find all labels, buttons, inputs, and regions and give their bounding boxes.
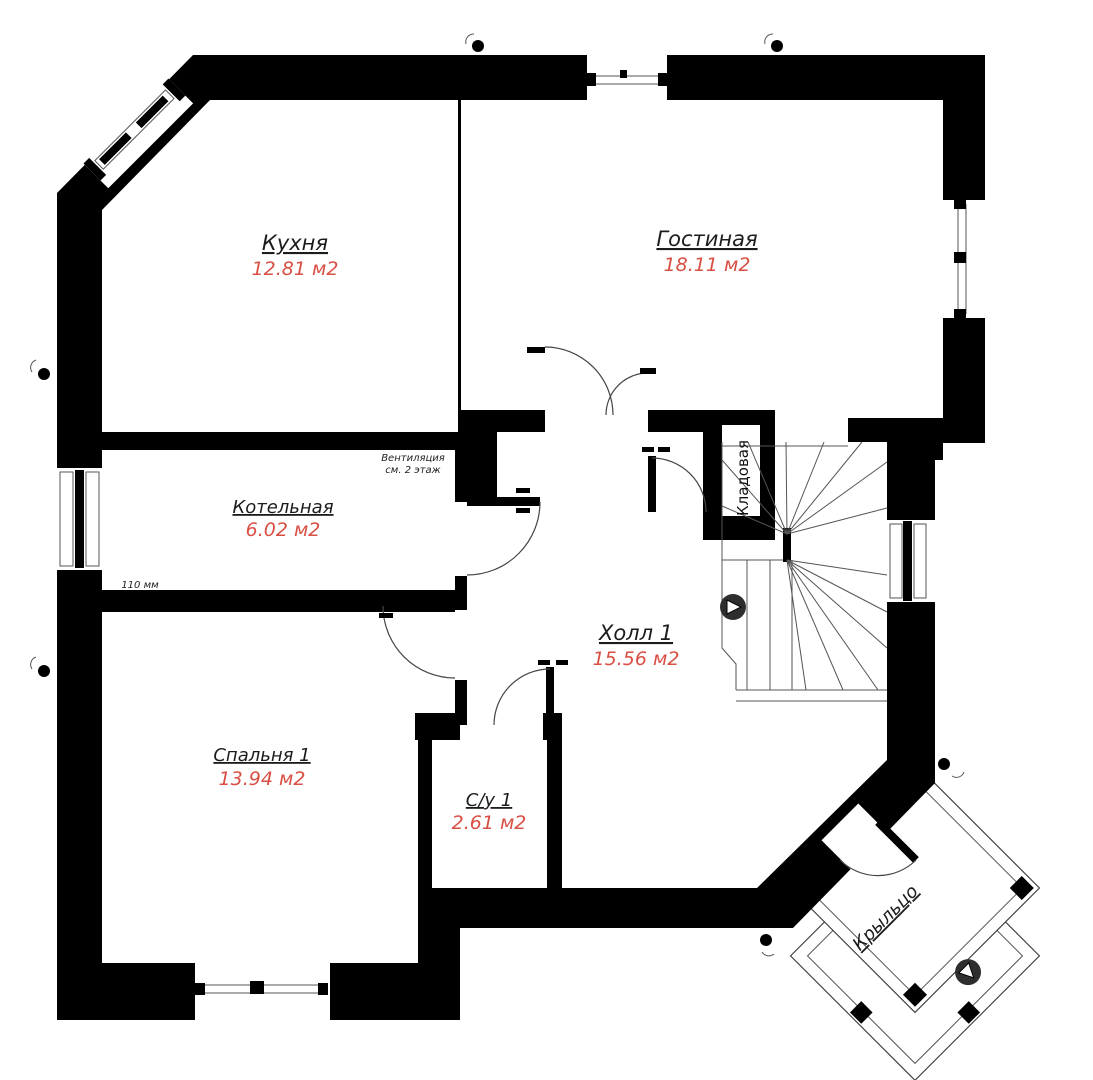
bathroom-door-opening [460, 725, 543, 740]
room-area-hall: 15.56 м2 [593, 648, 680, 670]
room-label-kitchen: Кухня [262, 231, 328, 255]
room-label-bedroom: Спальня 1 [213, 745, 310, 766]
ventilation-note-line2: см. 2 этаж [385, 465, 440, 476]
room-label-hall: Холл 1 [598, 621, 673, 645]
room-label-bathroom: С/у 1 [466, 790, 512, 811]
vent-mark-icon [765, 34, 783, 52]
room-area-living: 18.11 м2 [664, 254, 751, 276]
room-area-bathroom: 2.61 м2 [452, 812, 527, 834]
vent-mark-icon [31, 360, 50, 380]
room-label-living: Гостиная [656, 227, 757, 251]
vent-shaft [455, 432, 497, 503]
floor-plan-drawing: Крыльцо [0, 0, 1093, 1080]
window-right-living [943, 200, 990, 318]
window-left [57, 468, 102, 570]
storage-door-leaf [648, 456, 656, 512]
bedroom-door-leaf [383, 601, 455, 610]
vent-mark-icon [938, 758, 964, 777]
room-label-boiler: Котельная [232, 497, 333, 518]
room-area-boiler: 6.02 м2 [246, 519, 321, 541]
boiler-door-opening [455, 502, 467, 576]
wall-thickness-note: 110 мм [121, 580, 159, 591]
boiler-door-leaf [467, 497, 540, 506]
stairs-direction-icon [720, 594, 746, 620]
vent-mark-icon [466, 34, 484, 52]
ventilation-note-line1: Вентиляция [381, 453, 445, 464]
room-area-bedroom: 13.94 м2 [219, 768, 306, 790]
window-bottom [195, 963, 330, 1020]
floor-plan-page: { "plan": { "rooms": [ {"id":"kitchen","… [0, 0, 1093, 1080]
window-top [587, 55, 667, 100]
room-area-kitchen: 12.81 м2 [252, 258, 339, 280]
room-label-storage: Кладовая [734, 440, 752, 516]
window-right-stairs [887, 520, 935, 602]
vent-mark-icon [760, 934, 774, 956]
bathroom-door-leaf [546, 667, 554, 725]
vent-mark-icon [31, 657, 50, 677]
bedroom-door-opening [455, 610, 467, 680]
kitchen-living-divider [458, 100, 461, 412]
